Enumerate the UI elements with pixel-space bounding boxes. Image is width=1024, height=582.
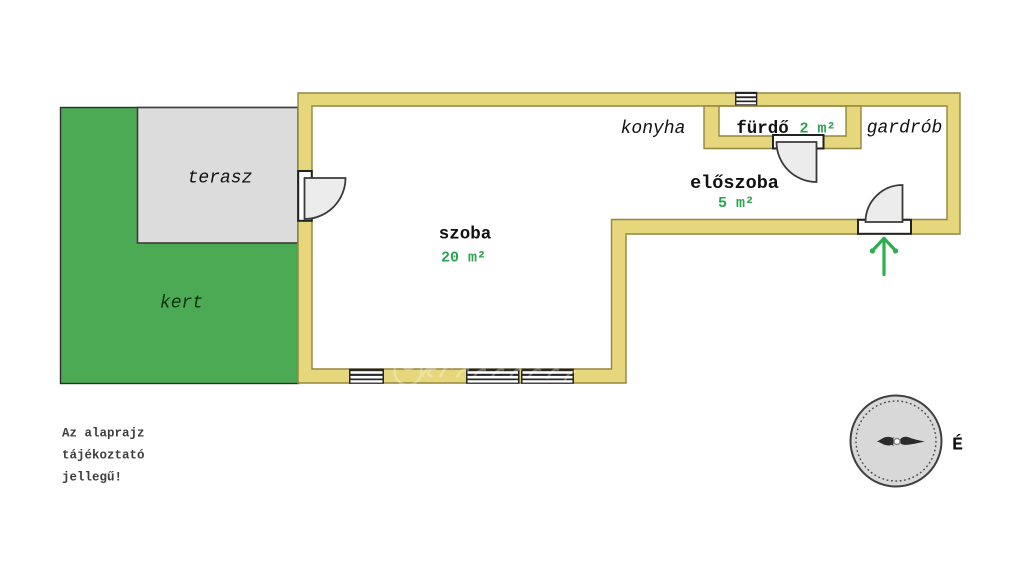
svg-text:előszoba: előszoba [690,173,779,194]
svg-text:kert: kert [160,294,203,314]
svg-text:2 m²: 2 m² [799,121,835,138]
svg-text:konyha: konyha [621,119,686,139]
svg-text:Az alaprajz: Az alaprajz [62,427,145,441]
svg-text:terasz: terasz [188,169,253,189]
svg-text:jellegű!: jellegű! [62,471,122,485]
svg-text:szoba: szoba [439,225,492,245]
svg-text:fürdő: fürdő [736,119,789,139]
svg-text:20 m²: 20 m² [441,250,486,267]
svg-text:5 m²: 5 m² [718,195,754,212]
svg-text:É: É [952,434,963,456]
svg-text:tájékoztató: tájékoztató [62,449,145,463]
svg-text:gardrób: gardrób [867,119,943,139]
